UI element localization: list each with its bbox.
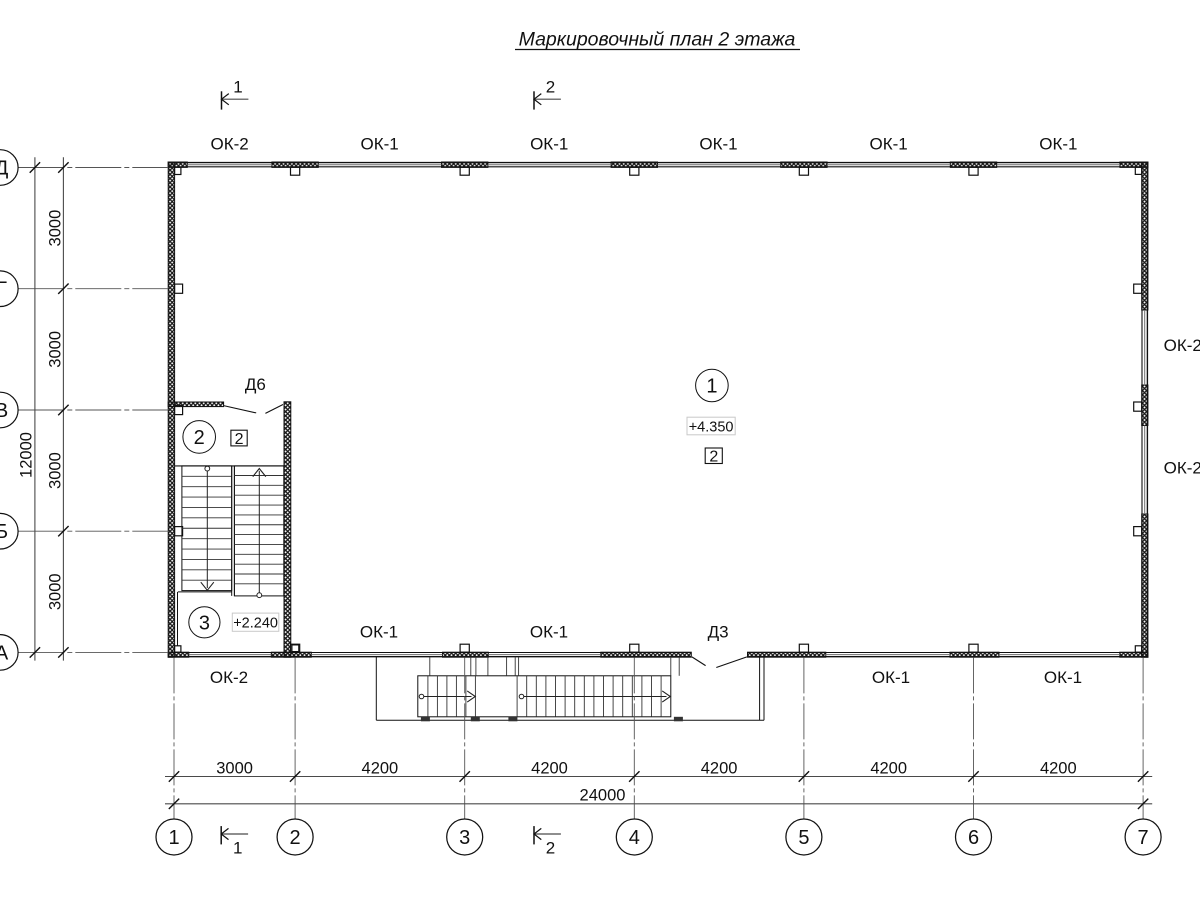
svg-text:+4.350: +4.350 <box>689 419 734 435</box>
svg-text:3: 3 <box>199 613 210 635</box>
svg-text:2: 2 <box>709 448 718 465</box>
svg-text:3000: 3000 <box>216 759 253 777</box>
svg-text:ОК-1: ОК-1 <box>360 623 398 642</box>
svg-text:Д: Д <box>0 158 9 180</box>
svg-text:12000: 12000 <box>18 432 36 478</box>
svg-text:6: 6 <box>968 827 979 849</box>
svg-text:ОК-1: ОК-1 <box>530 135 568 154</box>
svg-text:3: 3 <box>459 827 470 849</box>
svg-text:+2.240: +2.240 <box>233 615 278 631</box>
svg-text:2: 2 <box>235 431 244 448</box>
svg-text:Д6: Д6 <box>245 375 266 394</box>
svg-text:ОК-1: ОК-1 <box>872 668 910 687</box>
svg-text:ОК-1: ОК-1 <box>869 135 907 154</box>
svg-text:ОК-1: ОК-1 <box>530 623 568 642</box>
svg-text:Маркировочный план 2 этажа: Маркировочный план 2 этажа <box>519 29 796 51</box>
svg-text:ОК-2: ОК-2 <box>210 668 248 687</box>
svg-text:4200: 4200 <box>701 759 738 777</box>
svg-text:В: В <box>0 400 8 422</box>
svg-text:1: 1 <box>706 376 717 398</box>
svg-text:3000: 3000 <box>46 573 64 610</box>
svg-text:ОК-1: ОК-1 <box>699 135 737 154</box>
svg-text:Б: Б <box>0 521 8 543</box>
svg-text:5: 5 <box>798 827 809 849</box>
svg-text:4200: 4200 <box>531 759 568 777</box>
svg-text:3000: 3000 <box>46 452 64 489</box>
svg-text:3000: 3000 <box>46 210 64 247</box>
svg-text:ОК-1: ОК-1 <box>1044 668 1082 687</box>
svg-text:2: 2 <box>290 827 301 849</box>
svg-text:4200: 4200 <box>1040 759 1077 777</box>
svg-text:ОК-2: ОК-2 <box>1164 336 1200 355</box>
svg-text:2: 2 <box>546 78 555 97</box>
svg-text:4: 4 <box>629 827 640 849</box>
svg-text:7: 7 <box>1138 827 1149 849</box>
svg-text:3000: 3000 <box>46 331 64 368</box>
svg-text:1: 1 <box>233 838 242 857</box>
svg-text:1: 1 <box>168 827 179 849</box>
svg-text:24000: 24000 <box>580 786 626 804</box>
svg-text:А: А <box>0 642 9 664</box>
svg-text:2: 2 <box>194 427 205 449</box>
svg-text:4200: 4200 <box>362 759 399 777</box>
svg-text:ОК-1: ОК-1 <box>1039 135 1077 154</box>
svg-text:Д3: Д3 <box>708 623 729 642</box>
svg-text:Г: Г <box>0 279 7 301</box>
svg-text:ОК-2: ОК-2 <box>1164 458 1200 477</box>
svg-text:ОК-2: ОК-2 <box>210 135 248 154</box>
svg-text:1: 1 <box>233 78 242 97</box>
svg-text:ОК-1: ОК-1 <box>360 135 398 154</box>
svg-text:2: 2 <box>546 838 555 857</box>
svg-text:4200: 4200 <box>870 759 907 777</box>
